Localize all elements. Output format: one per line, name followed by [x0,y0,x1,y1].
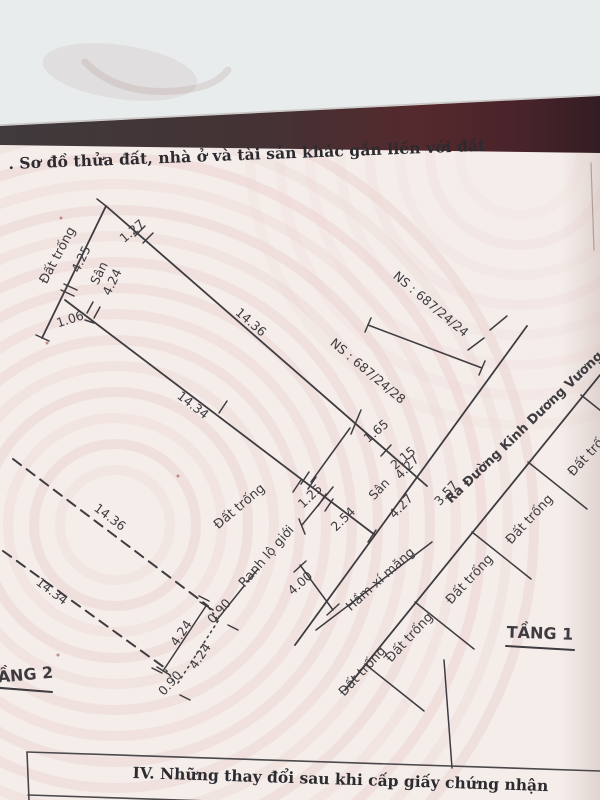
speck [46,342,49,345]
svg-text:TẦNG 1: TẦNG 1 [506,620,573,643]
land-plot-diagram: Đất trống1.274.25Sân4.241.0614.36NS : 68… [0,0,600,800]
speck [60,217,63,220]
photographed-land-certificate-page: Đất trống1.274.25Sân4.241.0614.36NS : 68… [0,0,600,800]
speck [57,654,60,657]
diagram-label: TẦNG 1 [506,620,573,643]
speck [177,475,180,478]
